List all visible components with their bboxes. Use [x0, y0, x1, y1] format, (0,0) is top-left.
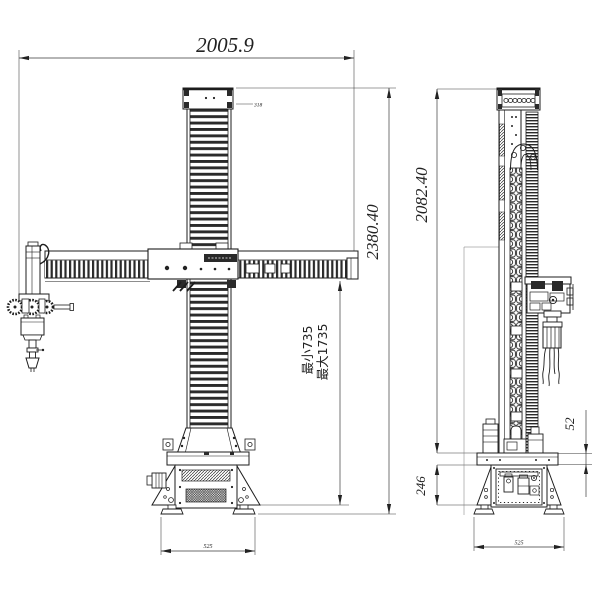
dim-front-overall-width: 2005.9 [196, 33, 254, 57]
manipulator-drawing: 2005.9 2380.40 最小735 最大1735 318 525 [0, 0, 600, 600]
cad-drawing-canvas: 2005.9 2380.40 最小735 最大1735 318 525 [0, 0, 600, 600]
dim-side-base-width: 525 [515, 541, 524, 547]
welding-torch [26, 340, 44, 372]
dim-side-plate-thickness: 52 [562, 417, 577, 431]
dim-front-base-width: 525 [204, 544, 213, 550]
dim-front-stroke-min: 最小735 [300, 326, 315, 375]
front-view: 2005.9 2380.40 最小735 最大1735 318 525 [8, 33, 396, 555]
side-view: 2082.40 246 52 525 [412, 88, 592, 551]
front-base [147, 428, 260, 514]
dim-front-overall-height: 2380.40 [363, 204, 382, 260]
dim-front-stroke-max: 最大1735 [315, 324, 330, 381]
dim-side-column-height: 2082.40 [412, 167, 431, 223]
boom-carriage [148, 249, 238, 279]
torch-cables [543, 348, 546, 384]
side-cap [497, 88, 540, 110]
side-torch [543, 311, 562, 386]
cable-chain [510, 168, 522, 445]
dim-side-base-height: 246 [413, 476, 428, 496]
dim-front-cap-note: 318 [253, 103, 263, 109]
